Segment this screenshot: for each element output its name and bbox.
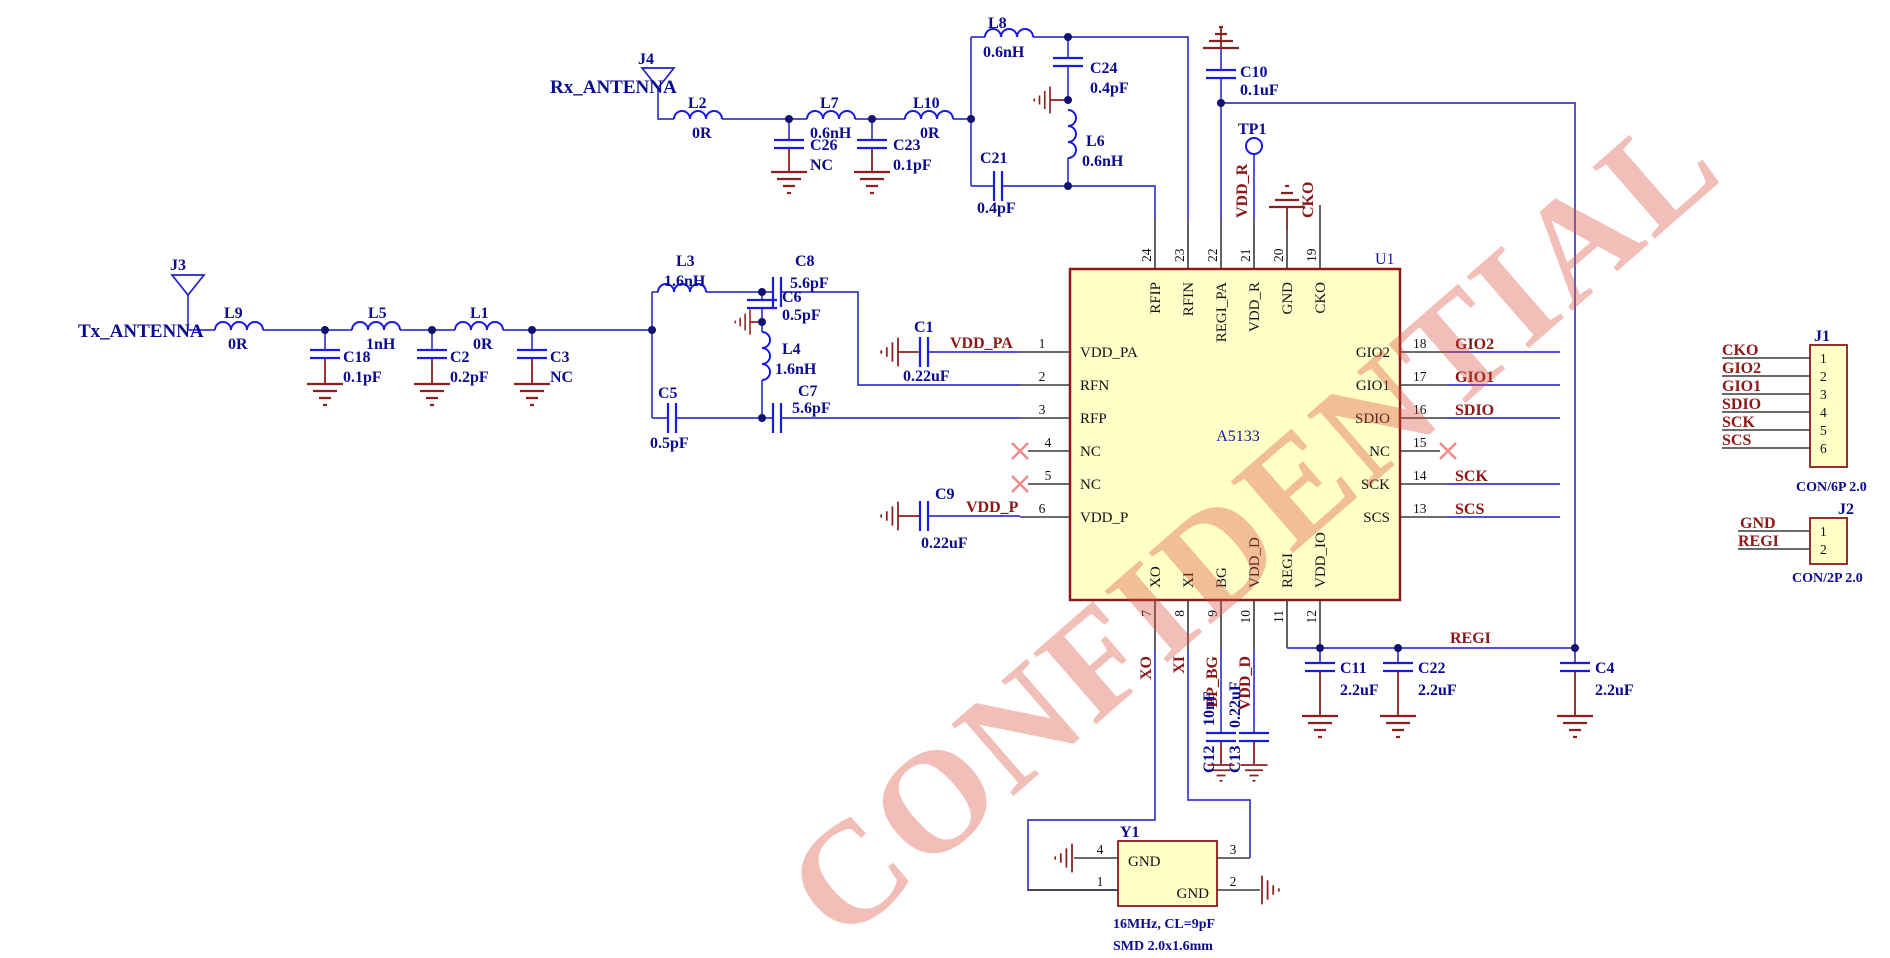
part-ref: C6 <box>782 289 802 306</box>
part-ref: L6 <box>1086 133 1105 150</box>
crystal-note: 16MHz, CL=9pF <box>1113 917 1215 932</box>
net-label: CKO <box>1722 342 1758 359</box>
net-label: SCS <box>1722 432 1751 449</box>
part-val: NC <box>810 157 833 174</box>
pin-name: VDD_R <box>1247 282 1263 332</box>
connector-type: CON/2P 2.0 <box>1792 571 1863 586</box>
net-label: SCK <box>1455 468 1488 485</box>
part-ref: L8 <box>988 15 1007 32</box>
part-ref: L7 <box>820 95 839 112</box>
connector-ref: J2 <box>1838 501 1854 518</box>
ic-ref: U1 <box>1375 251 1395 268</box>
part-ref: C9 <box>935 486 955 503</box>
net-label-vdd-pa: VDD_PA <box>950 335 1013 352</box>
pin-number: 21 <box>1238 249 1253 263</box>
part-ref: C18 <box>343 349 371 366</box>
crystal-pin-number: 2 <box>1230 874 1237 889</box>
part-ref: L4 <box>782 341 801 358</box>
part-val: 0.22uF <box>1227 681 1244 728</box>
pin-name: RFP <box>1080 411 1107 427</box>
part-val: 0.1uF <box>1240 82 1279 99</box>
pin-number: 19 <box>1304 248 1319 262</box>
pin-number: 5 <box>1045 468 1052 483</box>
pin-name: RFIN <box>1181 282 1197 316</box>
net-label-regi: REGI <box>1450 630 1491 647</box>
connector-ref-j3: J3 <box>170 257 186 274</box>
crystal-gnd-bottom: GND <box>1177 886 1210 902</box>
pin-name: NC <box>1080 477 1101 493</box>
net-label: GIO2 <box>1722 360 1761 377</box>
part-ref: C22 <box>1418 660 1446 677</box>
part-val: 10nF <box>1201 691 1218 726</box>
pin-name: VDD_PA <box>1080 345 1138 361</box>
part-ref: L1 <box>470 305 489 322</box>
part-ref: L9 <box>224 305 243 322</box>
pin-number: 24 <box>1139 248 1154 262</box>
pin-number: 12 <box>1304 610 1319 624</box>
crystal-ref: Y1 <box>1120 824 1140 841</box>
part-ref: C13 <box>1227 745 1244 773</box>
pin-number: 1 <box>1039 336 1046 351</box>
pin-number: 20 <box>1271 248 1286 262</box>
part-ref: C3 <box>550 349 570 366</box>
crystal-note: SMD 2.0x1.6mm <box>1113 939 1213 954</box>
part-ref: C24 <box>1090 60 1118 77</box>
part-ref: C26 <box>810 137 838 154</box>
net-label-tx-antenna: Tx_ANTENNA <box>78 321 204 342</box>
net-label: SCK <box>1722 414 1755 431</box>
net-label: SDIO <box>1722 396 1761 413</box>
part-ref: C12 <box>1201 745 1218 773</box>
net-label-cko: CKO <box>1300 182 1317 218</box>
pin-name: RFN <box>1080 378 1109 394</box>
connector-pin: 1 <box>1820 524 1827 539</box>
part-ref: C21 <box>980 150 1008 167</box>
part-ref: L3 <box>676 253 695 270</box>
pin-name: VDD_P <box>1080 510 1128 526</box>
connector-j1-body <box>1810 345 1847 467</box>
part-ref: C5 <box>658 385 678 402</box>
part-ref: C4 <box>1595 660 1615 677</box>
crystal-pin-number: 4 <box>1097 842 1104 857</box>
pin-number: 2 <box>1039 369 1046 384</box>
part-val: NC <box>550 369 573 386</box>
part-val: 0.22uF <box>921 535 968 552</box>
net-label-rx-antenna: Rx_ANTENNA <box>550 77 677 98</box>
net-label-vdd-r: VDD_R <box>1234 163 1251 218</box>
net-label-vdd-p: VDD_P <box>966 499 1019 516</box>
crystal-pin-number: 3 <box>1230 842 1237 857</box>
part-ref: L5 <box>368 305 387 322</box>
net-label: GIO1 <box>1722 378 1761 395</box>
schematic-canvas: U1 A5133 VDD_PA RFN RFP NC NC VDD_P 1 2 … <box>0 0 1890 958</box>
pin-number: 22 <box>1205 249 1220 263</box>
pin-number: 6 <box>1039 501 1046 516</box>
pin-number: 4 <box>1045 435 1052 450</box>
part-ref: L10 <box>913 95 940 112</box>
connector-pin: 2 <box>1820 369 1827 384</box>
connector-pin: 2 <box>1820 542 1827 557</box>
part-ref: C23 <box>893 137 921 154</box>
part-val: 0.6nH <box>1082 153 1124 170</box>
part-val: 0.2pF <box>450 369 489 386</box>
connector-type: CON/6P 2.0 <box>1796 480 1867 495</box>
part-val: 0.4pF <box>977 200 1016 217</box>
pin-name: GND <box>1280 282 1296 315</box>
part-val: 0.5pF <box>782 307 821 324</box>
part-ref: C8 <box>795 253 815 270</box>
pin-name: NC <box>1080 444 1101 460</box>
connector-ref-j4: J4 <box>638 51 654 68</box>
part-val: 0.22uF <box>903 368 950 385</box>
net-label: GND <box>1740 515 1776 532</box>
pin-number: 3 <box>1039 402 1046 417</box>
part-ref: C1 <box>914 319 934 336</box>
part-val: 2.2uF <box>1595 682 1634 699</box>
part-ref: C10 <box>1240 64 1268 81</box>
net-label: SCS <box>1455 501 1484 518</box>
part-val: 2.2uF <box>1340 682 1379 699</box>
part-ref: C7 <box>798 383 818 400</box>
pin-number: 23 <box>1172 248 1187 262</box>
part-val: 0R <box>228 336 248 353</box>
pin-name: CKO <box>1313 282 1329 314</box>
part-val: 0.1pF <box>893 157 932 174</box>
part-val: 0R <box>473 336 493 353</box>
testpoint-label: TP1 <box>1238 121 1266 138</box>
pin-number: 13 <box>1413 501 1427 516</box>
part-val: 0.1pF <box>343 369 382 386</box>
part-val: 0.6nH <box>983 44 1025 61</box>
part-val: 2.2uF <box>1418 682 1457 699</box>
part-val: 1.6nH <box>775 361 817 378</box>
crystal-gnd-top: GND <box>1128 854 1161 870</box>
part-val: 5.6pF <box>792 400 831 417</box>
antenna-icon-tx <box>172 275 204 295</box>
connector-pin: 5 <box>1820 423 1827 438</box>
connector-pin: 6 <box>1820 441 1827 456</box>
connector-ref: J1 <box>1814 328 1830 345</box>
connector-pin: 4 <box>1820 405 1827 420</box>
pin-name: REGI_PA <box>1214 282 1230 342</box>
pin-name: RFIP <box>1148 282 1164 314</box>
connector-pin: 3 <box>1820 387 1827 402</box>
part-val: 0R <box>920 125 940 142</box>
connector-j2-body <box>1810 518 1847 564</box>
part-val: 0R <box>692 125 712 142</box>
part-ref: C11 <box>1340 660 1367 677</box>
net-label: REGI <box>1738 533 1779 550</box>
part-ref: C2 <box>450 349 470 366</box>
part-val: 0.4pF <box>1090 80 1129 97</box>
connector-pin: 1 <box>1820 351 1827 366</box>
crystal-pin-number: 1 <box>1097 874 1104 889</box>
part-val: 1.6nH <box>664 273 706 290</box>
part-val: 0.5pF <box>650 435 689 452</box>
testpoint-icon <box>1246 138 1262 154</box>
part-ref: L2 <box>688 95 707 112</box>
